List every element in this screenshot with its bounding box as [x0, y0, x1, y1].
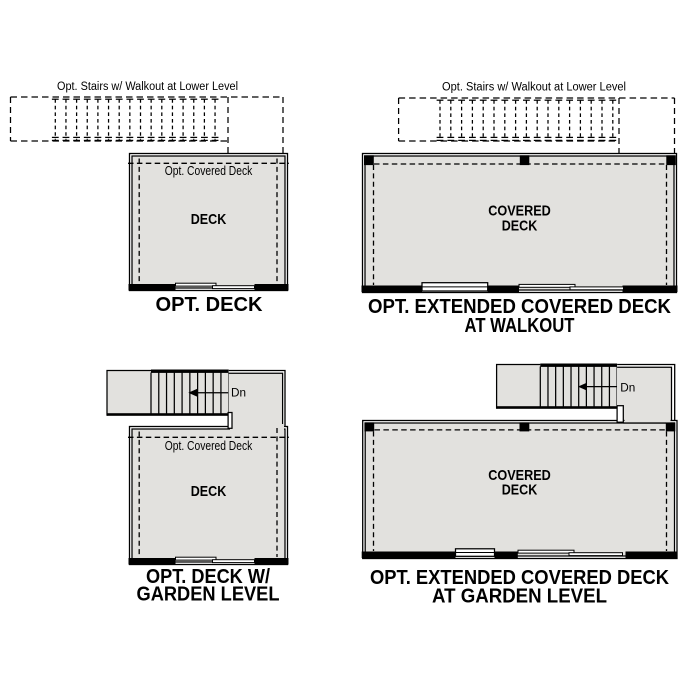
svg-text:DECK: DECK	[502, 482, 538, 499]
svg-text:Opt. Covered Deck: Opt. Covered Deck	[165, 439, 253, 453]
svg-text:OPT. DECK: OPT. DECK	[156, 294, 264, 316]
svg-text:DECK: DECK	[191, 211, 227, 228]
svg-text:AT GARDEN LEVEL: AT GARDEN LEVEL	[432, 586, 607, 608]
svg-text:Dn: Dn	[231, 386, 246, 400]
svg-text:Dn: Dn	[620, 381, 635, 395]
svg-text:AT WALKOUT: AT WALKOUT	[465, 315, 575, 337]
svg-text:DECK: DECK	[502, 218, 538, 235]
svg-text:GARDEN LEVEL: GARDEN LEVEL	[137, 584, 280, 606]
svg-text:Opt. Stairs w/ Walkout at Lowe: Opt. Stairs w/ Walkout at Lower Level	[57, 81, 238, 93]
svg-text:DECK: DECK	[191, 483, 227, 500]
svg-text:Opt. Covered Deck: Opt. Covered Deck	[165, 164, 253, 178]
svg-text:Opt. Stairs w/ Walkout at Lowe: Opt. Stairs w/ Walkout at Lower Level	[442, 82, 626, 94]
